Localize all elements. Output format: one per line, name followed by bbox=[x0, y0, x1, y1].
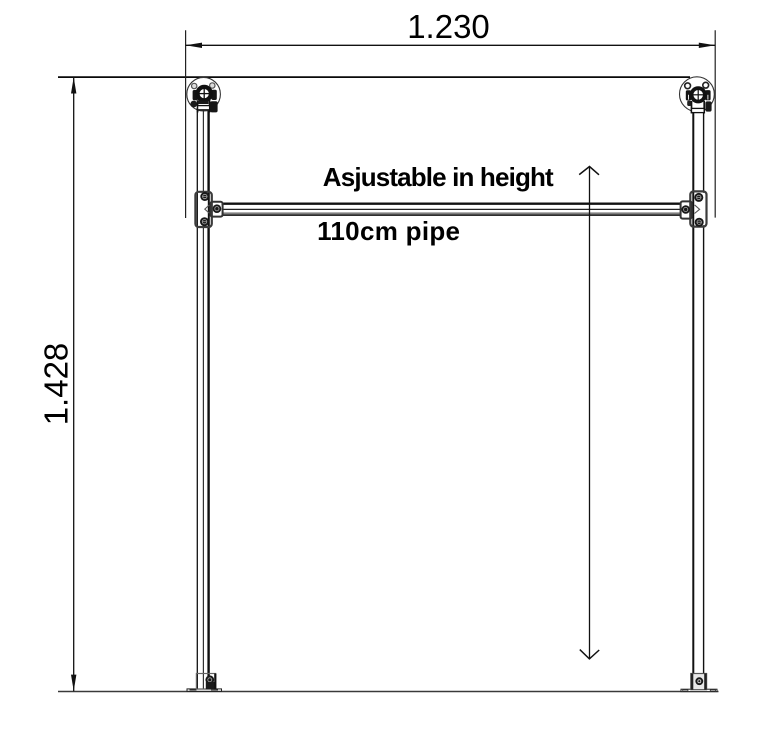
svg-text:1.428: 1.428 bbox=[37, 343, 74, 426]
svg-text:110cm pipe: 110cm pipe bbox=[317, 216, 460, 246]
svg-text:1.230: 1.230 bbox=[407, 8, 490, 45]
svg-text:Asjustable in height: Asjustable in height bbox=[323, 162, 554, 192]
